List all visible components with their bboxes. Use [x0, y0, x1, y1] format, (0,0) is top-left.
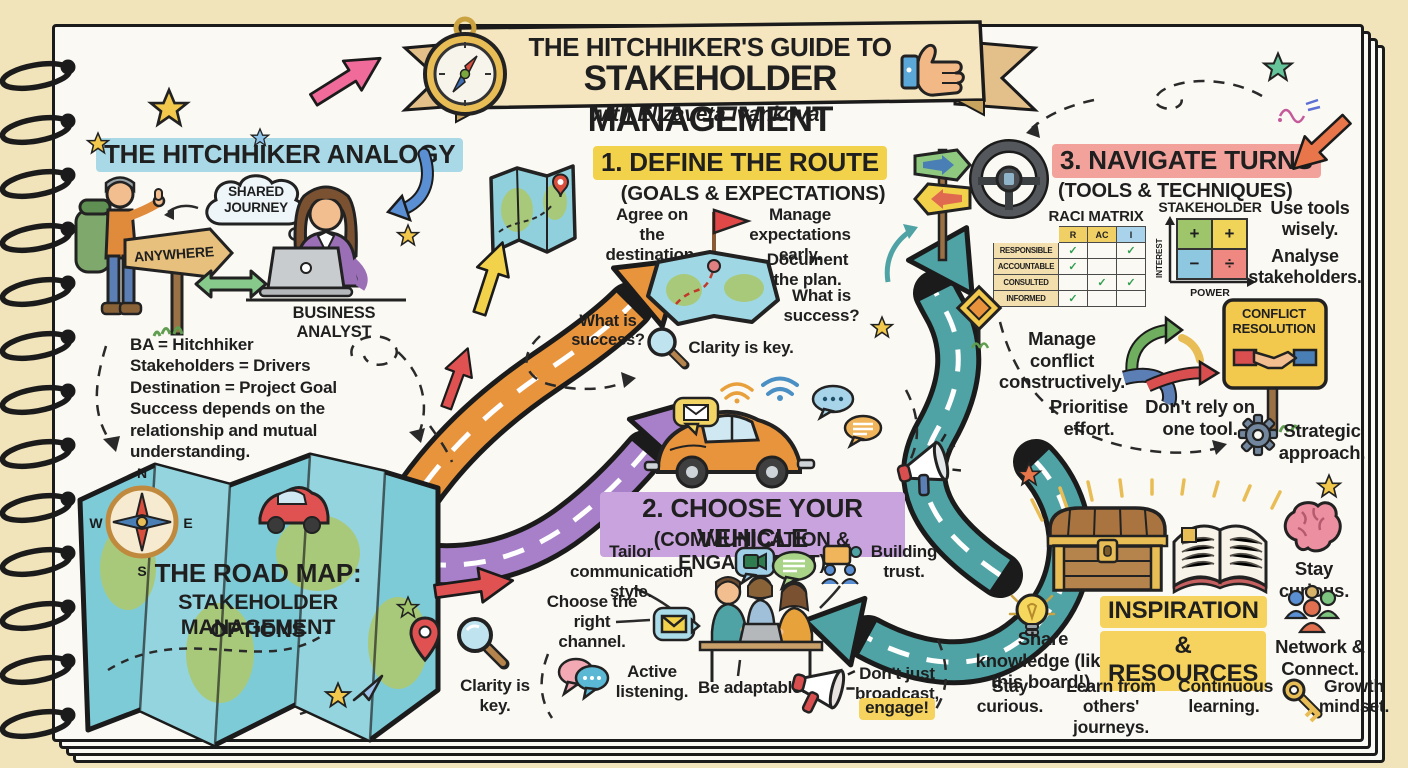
raci-cell [1088, 291, 1117, 307]
beetle-car-icon [640, 392, 835, 497]
magnifier-large-icon [456, 616, 508, 668]
paper-plane-icon [352, 674, 384, 702]
conflict-sign-line1: CONFLICT [1230, 306, 1318, 321]
step1-success-left-text: What is success? [566, 312, 650, 351]
inspiration-continuous-text: Continuous learning. [1178, 676, 1270, 717]
email-bubble-icon [672, 396, 720, 436]
raci-cell [1059, 275, 1088, 291]
junction-arrows-icon [1118, 310, 1233, 408]
step1-subheading: (GOALS & EXPECTATIONS) [588, 182, 918, 206]
raci-header: R [1059, 227, 1088, 243]
step3-analyse-text: Analyse stakeholders. [1244, 246, 1366, 288]
raci-row-label: INFORMED [994, 291, 1059, 307]
star-icon [870, 316, 894, 340]
wifi-blue-icon [758, 370, 802, 402]
inspiration-learn-text: Learn from others' journeys. [1048, 676, 1174, 737]
step2-trust-text: Building trust. [854, 542, 954, 582]
raci-header: AC [1088, 227, 1117, 243]
raci-cell: ✓ [1059, 291, 1088, 307]
location-pin-icon [408, 616, 442, 662]
grid-quadrant: − [1178, 250, 1211, 278]
raci-cell: ✓ [1059, 243, 1088, 259]
magnifier-icon [646, 326, 688, 368]
gear-icon [1236, 412, 1280, 460]
raci-cell: ✓ [1088, 275, 1117, 291]
conflict-sign-line2: RESOLUTION [1230, 321, 1318, 336]
note-line: Destination = Project Goal [130, 377, 408, 398]
stakeholder-grid: + + − ÷ [1176, 218, 1248, 280]
note-line: BA = Hitchhiker [130, 334, 408, 355]
step3-prioritise-text: Prioritise effort. [1036, 396, 1142, 439]
step1-heading-highlight: 1. DEFINE THE ROUTE [593, 146, 887, 180]
wifi-orange-icon [718, 376, 756, 404]
inspiration-stay-curious-bottom: Stay curious. [972, 676, 1048, 717]
raci-row-label: CONSULTED [994, 275, 1059, 291]
step3-heading-highlight: 3. NAVIGATE TURNS [1052, 144, 1321, 178]
clarity-is-key-bottom: Clarity is key. [452, 676, 538, 716]
inspiration-network-text: Network & Connect. [1268, 636, 1372, 679]
roadmap-title-line3: OPTIONS [118, 618, 398, 643]
step2-choose-text: Choose the right channel. [543, 592, 641, 652]
business-analyst-figure [246, 176, 406, 318]
step2-active-text: Active listening. [606, 662, 698, 702]
grid-quadrant: + [1178, 220, 1211, 248]
star-icon [250, 128, 270, 148]
steering-wheel-icon [970, 140, 1048, 218]
note-line: Stakeholders = Drivers [130, 355, 408, 376]
raci-row-label: ACCOUNTABLE [994, 259, 1059, 275]
compass-e: E [183, 515, 192, 531]
step1-success-right-text: What is success? [774, 286, 869, 326]
star-icon [396, 224, 420, 248]
grid-y-axis-label: INTEREST [1155, 238, 1164, 278]
grid-quadrant: ÷ [1213, 250, 1246, 278]
step3-strategic-text: Strategic approach. [1276, 420, 1368, 463]
double-arrow-icon [194, 266, 268, 302]
channel-email-icon [652, 606, 700, 650]
brain-icon [1280, 498, 1338, 554]
direction-signpost-icon [912, 146, 974, 264]
star-icon [86, 132, 110, 156]
clarity-bottom-label: Clarity is key. [460, 676, 530, 715]
raci-cell [1088, 259, 1117, 275]
grid-quadrant: + [1213, 220, 1246, 248]
banner-title-line2: STAKEHOLDER MANAGEMENT [460, 59, 960, 141]
conflict-sign-text: CONFLICT RESOLUTION [1230, 306, 1318, 336]
step1-heading: 1. DEFINE THE ROUTE [593, 146, 933, 180]
star-icon [324, 682, 352, 710]
diamond-road-sign-icon [956, 286, 1002, 354]
inspiration-growth-text: Growth mindset. [1316, 676, 1392, 717]
banner-subtitle: with Elizaveta Ivankova [540, 103, 870, 128]
raci-cell [1088, 243, 1117, 259]
engage-highlight: engage! [859, 698, 935, 720]
roadmap-title-line1: THE ROAD MAP: [118, 558, 398, 588]
star-icon [1262, 52, 1294, 84]
banner-title-line1: THE HITCHHIKER'S GUIDE TO [470, 32, 950, 62]
squiggle-icon [1276, 94, 1324, 124]
chat-bubbles-icon [556, 654, 610, 702]
step3-use-tools-text: Use tools wisely. [1260, 198, 1360, 240]
star-icon [1316, 474, 1342, 500]
inspiration-heading-line1: INSPIRATION [1100, 596, 1267, 628]
star-icon [148, 88, 190, 130]
raci-title: RACI MATRIX [1044, 208, 1148, 226]
lines-bubble-icon [842, 414, 884, 448]
compass-w: W [89, 515, 103, 531]
network-people-icon [1284, 584, 1342, 636]
compass-n: N [137, 465, 147, 481]
step3-manage-conflict-text: Manage conflict constructively. [998, 328, 1126, 393]
raci-matrix-table: R AC I RESPONSIBLE ✓ ✓ ACCOUNTABLE ✓ CON… [993, 226, 1146, 307]
flag-map-icon [640, 204, 785, 330]
step2-engage-text: engage! [848, 698, 946, 720]
raci-row-label: RESPONSIBLE [994, 243, 1059, 259]
compass-rose-icon [108, 488, 176, 556]
raci-cell: ✓ [1059, 259, 1088, 275]
treasure-chest-icon [1040, 502, 1175, 598]
star-icon [1016, 462, 1042, 488]
step1-clarity-text: Clarity is key. [686, 338, 796, 358]
